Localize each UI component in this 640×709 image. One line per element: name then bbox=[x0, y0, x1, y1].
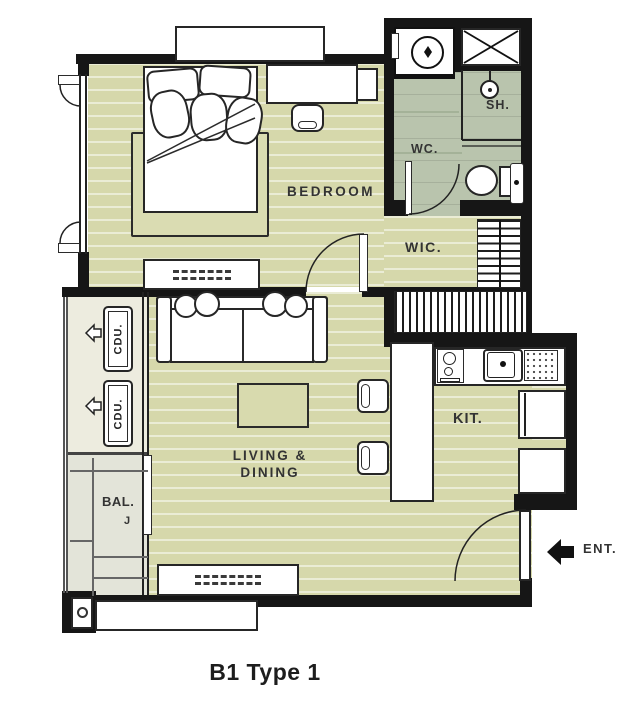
sofa-cushion-4 bbox=[284, 294, 308, 318]
wardrobe-rod-line bbox=[499, 220, 501, 287]
stove-burner-small bbox=[444, 367, 453, 376]
utility-box-circle bbox=[77, 607, 88, 618]
glass-wall-living-outer bbox=[142, 292, 144, 595]
window-casement-1 bbox=[58, 75, 80, 85]
ac-unit-bedroom bbox=[143, 259, 260, 290]
exterior-planter bbox=[95, 600, 258, 631]
cdu-unit-lower: CDU. bbox=[103, 380, 133, 447]
window-1-swing-arc bbox=[60, 85, 81, 106]
sink-faucet-dot bbox=[500, 361, 506, 367]
wc-door-leaf bbox=[405, 161, 412, 215]
bed-cushion-2 bbox=[188, 92, 229, 143]
label-living-dining: LIVING & DINING bbox=[212, 447, 328, 481]
fridge-door-line bbox=[524, 393, 526, 436]
sofa-seat-divider bbox=[242, 310, 244, 361]
entry-door-leaf bbox=[519, 510, 531, 581]
label-shower: SH. bbox=[486, 99, 510, 113]
desk-side-unit bbox=[356, 68, 378, 101]
stool-1 bbox=[357, 379, 389, 413]
desk-chair bbox=[291, 104, 324, 132]
label-balcony-drain: J bbox=[124, 515, 130, 527]
floor-balcony bbox=[68, 455, 148, 596]
label-wic: WIC. bbox=[405, 240, 442, 255]
balcony-rail-inner bbox=[66, 297, 68, 593]
fridge bbox=[518, 390, 566, 439]
plan-caption: B1 Type 1 bbox=[115, 660, 415, 685]
wall-kitchen-bottom bbox=[514, 494, 577, 510]
sliding-door-panel bbox=[143, 455, 152, 535]
stove-grate bbox=[440, 378, 460, 382]
label-living-line2: DINING bbox=[212, 464, 328, 481]
kitchen-cabinet bbox=[518, 448, 566, 494]
exhaust-fan-icon bbox=[411, 36, 444, 69]
window-casement-2 bbox=[58, 243, 80, 253]
stool-2-backrest bbox=[361, 446, 370, 470]
label-balcony: BAL. bbox=[102, 495, 134, 509]
ac-unit-living bbox=[157, 564, 299, 596]
wall-left-cap-top bbox=[78, 54, 89, 76]
ac-dash-line bbox=[173, 270, 231, 273]
ac-dash-line bbox=[195, 582, 261, 585]
toilet-bowl bbox=[465, 165, 498, 196]
coffee-table bbox=[237, 383, 309, 428]
stove-burner-large bbox=[443, 352, 456, 365]
exterior-ledge-top bbox=[175, 26, 325, 62]
wall-kitchen-right bbox=[566, 333, 577, 510]
glass-wall-living-inner bbox=[147, 292, 149, 595]
entrance-arrow-icon bbox=[547, 539, 574, 565]
balcony-tile-line-h3 bbox=[92, 556, 148, 558]
window-2-swing-arc bbox=[60, 222, 81, 243]
glass-wall-bedroom-inner bbox=[85, 74, 87, 254]
floorplan-b1-type1: CDU. CDU. BEDROOM WC. SH. WIC. bbox=[0, 0, 640, 709]
basin-drain-dot bbox=[514, 180, 519, 185]
desk-chair-seatline bbox=[298, 121, 317, 129]
label-living-line1: LIVING & bbox=[212, 447, 328, 464]
stool-1-backrest bbox=[361, 384, 370, 408]
stool-2 bbox=[357, 441, 389, 475]
dining-counter bbox=[390, 342, 434, 502]
desk bbox=[266, 64, 358, 104]
balcony-tile-line-h1 bbox=[70, 470, 148, 472]
shower-drain-dot bbox=[488, 88, 492, 92]
shaft-box bbox=[461, 28, 521, 66]
glass-wall-bedroom-outer bbox=[79, 74, 81, 254]
ac-dash-line bbox=[195, 575, 261, 578]
label-bedroom: BEDROOM bbox=[287, 185, 375, 200]
balcony-tile-line-h2 bbox=[70, 540, 92, 542]
label-kitchen: KIT. bbox=[453, 412, 483, 428]
sofa-cushion-2 bbox=[194, 291, 220, 317]
label-wc: WC. bbox=[411, 143, 438, 157]
label-entrance: ENT. bbox=[583, 542, 617, 556]
cdu-upper-label: CDU. bbox=[112, 324, 124, 355]
cdu-unit-upper: CDU. bbox=[103, 306, 133, 372]
wall-left-cap-bottom bbox=[78, 252, 89, 296]
balcony-rail-outer bbox=[63, 297, 65, 593]
balcony-tile-line-h4 bbox=[92, 577, 148, 579]
ac-dash-line bbox=[173, 277, 231, 280]
duct-slot bbox=[391, 33, 399, 59]
ledge-balcony-divider bbox=[68, 452, 148, 455]
balcony-tile-line-v bbox=[92, 458, 94, 596]
sofa-arm-right bbox=[312, 296, 328, 363]
cdu-lower-label: CDU. bbox=[112, 398, 124, 429]
wardrobe-hall-horizontal bbox=[394, 291, 527, 333]
bedroom-door-leaf bbox=[359, 234, 368, 292]
drain-board bbox=[524, 350, 558, 381]
wardrobe-wic-vertical bbox=[477, 219, 521, 288]
wall-bath-right bbox=[521, 18, 532, 292]
